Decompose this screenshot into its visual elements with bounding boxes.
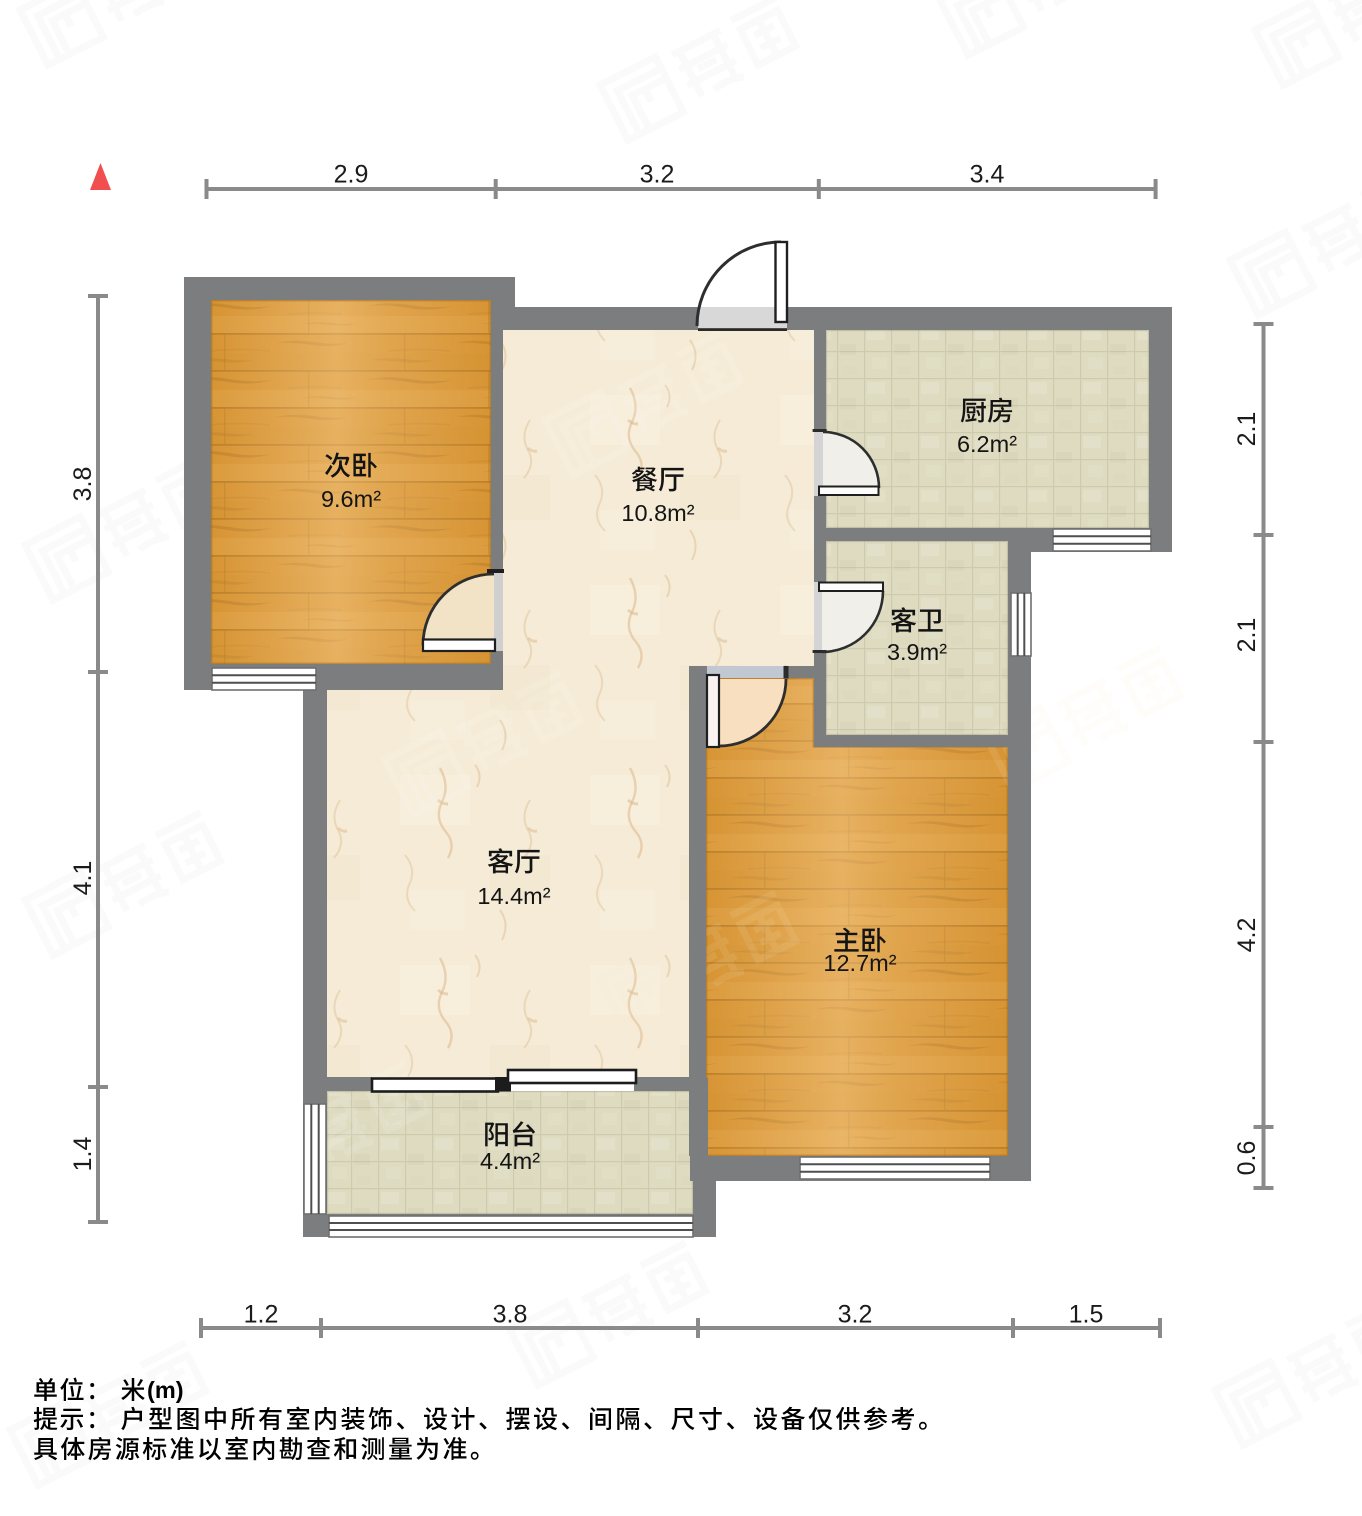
- svg-text:1.2: 1.2: [244, 1301, 279, 1329]
- svg-text:3.4: 3.4: [970, 161, 1005, 189]
- svg-text:10.8m²: 10.8m²: [621, 500, 694, 526]
- svg-text:14.4m²: 14.4m²: [477, 883, 550, 909]
- svg-text:12.7m²: 12.7m²: [823, 950, 896, 976]
- svg-text:2.1: 2.1: [1233, 412, 1261, 447]
- svg-text:(m): (m): [147, 1377, 184, 1403]
- svg-text:3.2: 3.2: [838, 1301, 873, 1329]
- svg-text:3.8: 3.8: [493, 1301, 528, 1329]
- svg-text:3.9m²: 3.9m²: [887, 639, 947, 665]
- svg-text:4.1: 4.1: [69, 861, 97, 896]
- svg-text:9.6m²: 9.6m²: [321, 486, 381, 512]
- svg-text:2.1: 2.1: [1233, 618, 1261, 653]
- svg-text:1.4: 1.4: [69, 1137, 97, 1172]
- svg-text:4.4m²: 4.4m²: [480, 1148, 540, 1174]
- svg-text:4.2: 4.2: [1233, 918, 1261, 953]
- svg-text:0.6: 0.6: [1233, 1141, 1261, 1176]
- svg-text:6.2m²: 6.2m²: [957, 431, 1017, 457]
- svg-text:1.5: 1.5: [1069, 1301, 1104, 1329]
- svg-text:2.9: 2.9: [334, 161, 369, 189]
- svg-text:3.2: 3.2: [640, 161, 675, 189]
- svg-text:3.8: 3.8: [69, 467, 97, 502]
